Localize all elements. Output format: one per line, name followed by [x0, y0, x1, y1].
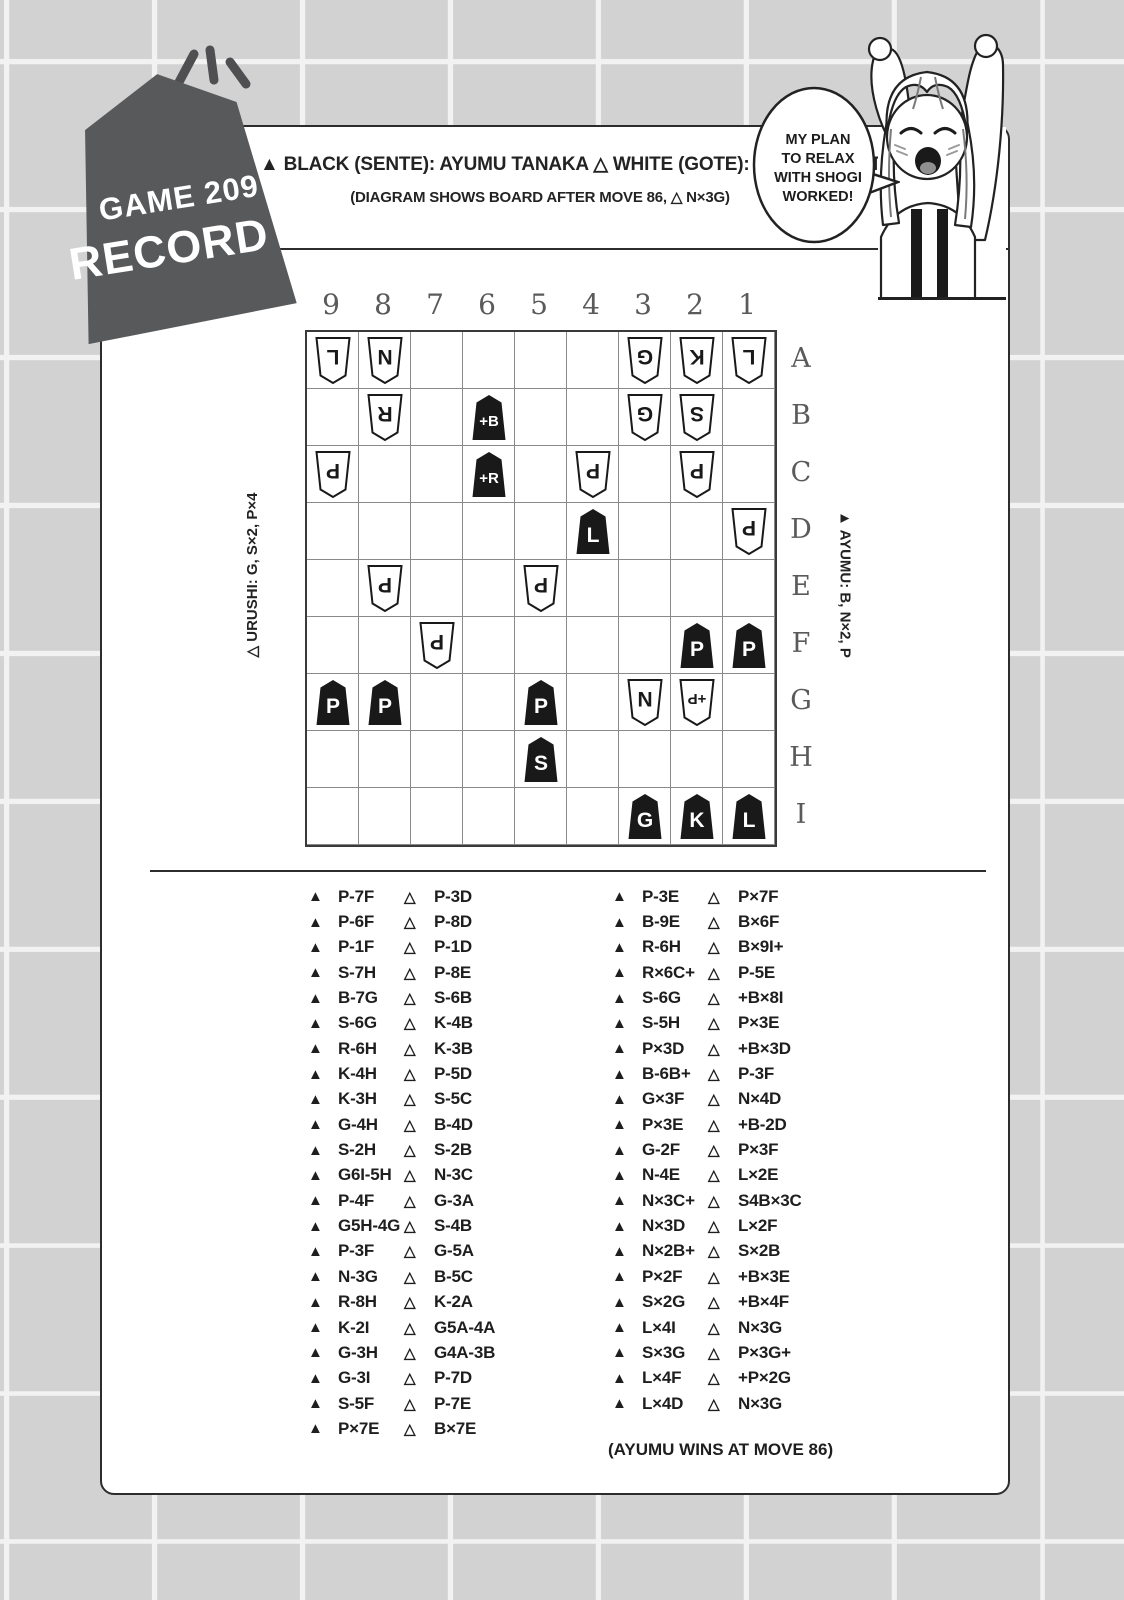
- move-row: ▲P×7E△B×7E: [308, 1416, 495, 1441]
- piece-label: L: [743, 809, 756, 832]
- piece-white-pawn: P: [727, 507, 771, 556]
- white-move-mark: △: [708, 1293, 738, 1311]
- black-move-mark: ▲: [612, 990, 642, 1007]
- black-move-mark: ▲: [612, 1294, 642, 1311]
- piece-label: P: [742, 516, 756, 539]
- black-hand-label: ▲ AYUMU: B, N×2, P: [837, 465, 854, 705]
- white-move: G-3A: [434, 1191, 474, 1211]
- tongue: [920, 162, 936, 174]
- move-row: ▲N-4E△L×2E: [612, 1163, 802, 1188]
- move-row: ▲P-4F△G-3A: [308, 1188, 495, 1213]
- white-move: +B-2D: [738, 1115, 787, 1135]
- move-row: ▲S×2G△+B×4F: [612, 1290, 802, 1315]
- black-move: S-5F: [338, 1394, 404, 1414]
- black-move-mark: ▲: [308, 1116, 338, 1133]
- piece-white-knight: N: [623, 678, 667, 727]
- piece-label: P: [690, 638, 704, 661]
- black-move: P×2F: [642, 1267, 708, 1287]
- white-move: P-3D: [434, 887, 472, 907]
- white-move-mark: △: [404, 1116, 434, 1134]
- white-move-mark: △: [708, 1014, 738, 1032]
- move-list-left: ▲P-7F△P-3D▲P-6F△P-8D▲P-1F△P-1D▲S-7H△P-8E…: [308, 884, 495, 1442]
- board-row-label: C: [786, 457, 816, 488]
- black-move-mark: ▲: [308, 1243, 338, 1260]
- white-move: B×9I+: [738, 937, 783, 957]
- white-move: K-2A: [434, 1292, 473, 1312]
- piece-white-pawn: P: [675, 450, 719, 499]
- move-row: ▲P×2F△+B×3E: [612, 1264, 802, 1289]
- black-move: P×7E: [338, 1419, 404, 1439]
- white-move-mark: △: [404, 1192, 434, 1210]
- white-move: P×7F: [738, 887, 778, 907]
- black-move-mark: ▲: [612, 1370, 642, 1387]
- move-row: ▲G-3H△G4A-3B: [308, 1340, 495, 1365]
- white-move: P×3G+: [738, 1343, 791, 1363]
- black-move-mark: ▲: [308, 1066, 338, 1083]
- piece-black-horse: +B: [467, 393, 511, 442]
- black-move-mark: ▲: [612, 1091, 642, 1108]
- move-row: ▲P×3D△+B×3D: [612, 1036, 802, 1061]
- white-move: P-8D: [434, 912, 472, 932]
- white-move-mark: △: [708, 1242, 738, 1260]
- black-move-mark: ▲: [308, 1268, 338, 1285]
- black-move: P-6F: [338, 912, 404, 932]
- piece-white-pawn: P: [363, 564, 407, 613]
- black-move: G-3H: [338, 1343, 404, 1363]
- white-move-mark: △: [708, 1116, 738, 1134]
- move-row: ▲R-8H△K-2A: [308, 1290, 495, 1315]
- white-move-mark: △: [708, 1141, 738, 1159]
- board-column-label: 8: [357, 288, 409, 321]
- board-column-label: 3: [617, 288, 669, 321]
- white-move-mark: △: [404, 1217, 434, 1235]
- white-move-mark: △: [708, 938, 738, 956]
- white-move-mark: △: [404, 1344, 434, 1362]
- black-move: B-9E: [642, 912, 708, 932]
- white-move: N×3G: [738, 1394, 782, 1414]
- black-move-mark: ▲: [612, 1167, 642, 1184]
- move-row: ▲L×4I△N×3G: [612, 1315, 802, 1340]
- black-move: R-6H: [338, 1039, 404, 1059]
- piece-label: P: [326, 459, 340, 482]
- move-row: ▲S-2H△S-2B: [308, 1137, 495, 1162]
- black-move: S-7H: [338, 963, 404, 983]
- black-move-mark: ▲: [308, 1167, 338, 1184]
- piece-label: P: [586, 459, 600, 482]
- bubble-line: WORKED!: [783, 188, 854, 207]
- diagram-note-line: (DIAGRAM SHOWS BOARD AFTER MOVE 86, △ N×…: [260, 188, 820, 206]
- move-row: ▲S-6G△+B×8I: [612, 985, 802, 1010]
- piece-white-gold: G: [623, 393, 667, 442]
- board-column-label: 7: [409, 288, 461, 321]
- black-move-mark: ▲: [308, 1218, 338, 1235]
- white-move: N-3C: [434, 1165, 473, 1185]
- white-move: S4B×3C: [738, 1191, 802, 1211]
- black-move-mark: ▲: [612, 1040, 642, 1057]
- piece-label: K: [689, 345, 704, 368]
- piece-black-pawn: P: [675, 621, 719, 670]
- piece-label: P: [430, 630, 444, 653]
- players-line: ▲ BLACK (SENTE): AYUMU TANAKA △ WHITE (G…: [260, 153, 820, 176]
- black-move-mark: ▲: [308, 1040, 338, 1057]
- black-move: P-3F: [338, 1241, 404, 1261]
- white-move: P-5E: [738, 963, 775, 983]
- move-list-right: ▲P-3E△P×7F▲B-9E△B×6F▲R-6H△B×9I+▲R×6C+△P-…: [612, 884, 802, 1416]
- board-row-label: H: [786, 742, 816, 773]
- black-move-mark: ▲: [612, 1116, 642, 1133]
- white-move-mark: △: [708, 1090, 738, 1108]
- black-move-mark: ▲: [612, 914, 642, 931]
- black-move: P-7F: [338, 887, 404, 907]
- white-move-mark: △: [708, 964, 738, 982]
- move-row: ▲L×4D△N×3G: [612, 1391, 802, 1416]
- right-fist: [975, 35, 997, 57]
- move-row: ▲R-6H△K-3B: [308, 1036, 495, 1061]
- black-move: K-2I: [338, 1318, 404, 1338]
- board-row-label: D: [786, 514, 816, 545]
- board-row-label: A: [786, 343, 816, 374]
- white-move: +B×3E: [738, 1267, 790, 1287]
- white-move: P-1D: [434, 937, 472, 957]
- board-column-label: 5: [513, 288, 565, 321]
- piece-black-pawn: P: [363, 678, 407, 727]
- piece-label: N: [637, 687, 652, 710]
- black-move-mark: ▲: [308, 914, 338, 931]
- piece-black-silver: S: [519, 735, 563, 784]
- black-move-mark: ▲: [308, 1420, 338, 1437]
- white-move: B×6F: [738, 912, 779, 932]
- strap-left: [911, 209, 922, 300]
- white-move-mark: △: [708, 888, 738, 906]
- black-move-mark: ▲: [612, 1192, 642, 1209]
- shogi-board: LNGKLR+BGSP+RPPLPPPPPPPPPN+PSGKL: [305, 330, 777, 847]
- white-move-mark: △: [708, 1192, 738, 1210]
- black-move: P-1F: [338, 937, 404, 957]
- move-row: ▲G×3F△N×4D: [612, 1087, 802, 1112]
- black-move-mark: ▲: [612, 1218, 642, 1235]
- white-move-mark: △: [404, 1242, 434, 1260]
- white-move-mark: △: [404, 1166, 434, 1184]
- move-row: ▲K-4H△P-5D: [308, 1061, 495, 1086]
- piece-label: P: [534, 573, 548, 596]
- white-move: +P×2G: [738, 1368, 791, 1388]
- white-move-mark: △: [404, 1065, 434, 1083]
- piece-white-tokin: +P: [675, 678, 719, 727]
- white-move-mark: △: [404, 1090, 434, 1108]
- white-move-mark: △: [708, 1344, 738, 1362]
- white-move-mark: △: [708, 1395, 738, 1413]
- black-move: G-3I: [338, 1368, 404, 1388]
- move-row: ▲N×2B+△S×2B: [612, 1239, 802, 1264]
- move-row: ▲S-5F△P-7E: [308, 1391, 495, 1416]
- piece-label: P: [378, 573, 392, 596]
- piece-white-pawn: P: [571, 450, 615, 499]
- piece-label: +R: [479, 470, 499, 487]
- black-move-mark: ▲: [612, 888, 642, 905]
- piece-black-pawn: P: [311, 678, 355, 727]
- move-row: ▲S-7H△P-8E: [308, 960, 495, 985]
- white-move: P-8E: [434, 963, 471, 983]
- piece-label: G: [637, 809, 653, 832]
- white-move: K-3B: [434, 1039, 473, 1059]
- black-move: G-2F: [642, 1140, 708, 1160]
- piece-label: +P: [688, 690, 707, 707]
- white-move-mark: △: [404, 1420, 434, 1438]
- white-move: P-7E: [434, 1394, 471, 1414]
- black-move-mark: ▲: [308, 990, 338, 1007]
- white-move: N×4D: [738, 1089, 781, 1109]
- move-row: ▲P-3E△P×7F: [612, 884, 802, 909]
- bubble-line: MY PLAN: [786, 131, 851, 150]
- result-note: (AYUMU WINS AT MOVE 86): [608, 1440, 833, 1460]
- white-move-mark: △: [404, 1293, 434, 1311]
- white-move: +B×4F: [738, 1292, 789, 1312]
- black-move: G×3F: [642, 1089, 708, 1109]
- white-move-mark: △: [404, 1141, 434, 1159]
- piece-label: G: [637, 345, 653, 368]
- move-row: ▲K-3H△S-5C: [308, 1087, 495, 1112]
- move-row: ▲G6I-5H△N-3C: [308, 1163, 495, 1188]
- move-row: ▲R-6H△B×9I+: [612, 935, 802, 960]
- board-row-label: F: [786, 628, 816, 659]
- board-row-label: E: [786, 571, 816, 602]
- move-row: ▲G5H-4G△S-4B: [308, 1213, 495, 1238]
- black-move: B-6B+: [642, 1064, 708, 1084]
- piece-black-lance: L: [727, 792, 771, 841]
- white-move-mark: △: [708, 1065, 738, 1083]
- move-row: ▲B-6B+△P-3F: [612, 1061, 802, 1086]
- white-move-mark: △: [708, 989, 738, 1007]
- piece-label: P: [534, 695, 548, 718]
- white-move: P-3F: [738, 1064, 774, 1084]
- piece-label: K: [689, 809, 704, 832]
- board-row-label: I: [786, 799, 816, 830]
- board-row-label: B: [786, 400, 816, 431]
- black-move-mark: ▲: [308, 1192, 338, 1209]
- black-move-mark: ▲: [308, 964, 338, 981]
- move-row: ▲G-4H△B-4D: [308, 1112, 495, 1137]
- black-move: S-5H: [642, 1013, 708, 1033]
- black-move-mark: ▲: [612, 1344, 642, 1361]
- black-move: B-7G: [338, 988, 404, 1008]
- white-move: +B×8I: [738, 988, 783, 1008]
- black-move-mark: ▲: [612, 964, 642, 981]
- black-move-mark: ▲: [308, 1370, 338, 1387]
- white-move-mark: △: [404, 964, 434, 982]
- board-row-label: G: [786, 685, 816, 716]
- piece-black-pawn: P: [727, 621, 771, 670]
- piece-white-lance: L: [727, 336, 771, 385]
- piece-white-rook: R: [363, 393, 407, 442]
- white-move-mark: △: [404, 938, 434, 956]
- black-move: P×3E: [642, 1115, 708, 1135]
- move-row: ▲G-2F△P×3F: [612, 1137, 802, 1162]
- piece-white-gold: G: [623, 336, 667, 385]
- move-row: ▲B-9E△B×6F: [612, 909, 802, 934]
- white-move-mark: △: [404, 1395, 434, 1413]
- speech-bubble-text: MY PLAN TO RELAX WITH SHOGI WORKED!: [754, 88, 882, 250]
- white-move-mark: △: [404, 913, 434, 931]
- move-row: ▲P-7F△P-3D: [308, 884, 495, 909]
- black-move: G-4H: [338, 1115, 404, 1135]
- white-move: N×3G: [738, 1318, 782, 1338]
- piece-label: N: [377, 345, 392, 368]
- white-move: P×3F: [738, 1140, 778, 1160]
- board-column-label: 1: [721, 288, 773, 321]
- board-column-label: 6: [461, 288, 513, 321]
- black-move: N×3D: [642, 1216, 708, 1236]
- white-move-mark: △: [708, 1166, 738, 1184]
- white-move-mark: △: [404, 1369, 434, 1387]
- manga-game-record-page: ▲ BLACK (SENTE): AYUMU TANAKA △ WHITE (G…: [0, 0, 1124, 1600]
- white-move: K-4B: [434, 1013, 473, 1033]
- strap-right: [937, 209, 948, 300]
- move-row: ▲P-1F△P-1D: [308, 935, 495, 960]
- white-move-mark: △: [708, 1268, 738, 1286]
- illustration-bottom-border: [878, 297, 1006, 300]
- black-move: S-2H: [338, 1140, 404, 1160]
- black-move: R-8H: [338, 1292, 404, 1312]
- move-row: ▲K-2I△G5A-4A: [308, 1315, 495, 1340]
- white-move-mark: △: [708, 1369, 738, 1387]
- move-row: ▲N×3C+△S4B×3C: [612, 1188, 802, 1213]
- white-move-mark: △: [708, 1217, 738, 1235]
- white-move: P×3E: [738, 1013, 779, 1033]
- piece-label: S: [534, 752, 548, 775]
- move-row: ▲B-7G△S-6B: [308, 985, 495, 1010]
- move-row: ▲S-6G△K-4B: [308, 1011, 495, 1036]
- piece-black-pawn: P: [519, 678, 563, 727]
- black-move: S×2G: [642, 1292, 708, 1312]
- white-move-mark: △: [404, 888, 434, 906]
- piece-black-lance: L: [571, 507, 615, 556]
- white-move: S-6B: [434, 988, 472, 1008]
- move-row: ▲S-5H△P×3E: [612, 1011, 802, 1036]
- black-move-mark: ▲: [612, 939, 642, 956]
- black-move: N×3C+: [642, 1191, 708, 1211]
- move-row: ▲N-3G△B-5C: [308, 1264, 495, 1289]
- moves-divider: [150, 870, 986, 872]
- white-move: B×7E: [434, 1419, 476, 1439]
- black-move: S-6G: [338, 1013, 404, 1033]
- black-move-mark: ▲: [308, 1142, 338, 1159]
- black-move: K-4H: [338, 1064, 404, 1084]
- white-move: S-2B: [434, 1140, 472, 1160]
- black-move: R-6H: [642, 937, 708, 957]
- black-move: S-6G: [642, 988, 708, 1008]
- black-move: L×4F: [642, 1368, 708, 1388]
- white-move: P-7D: [434, 1368, 472, 1388]
- piece-white-king: K: [675, 336, 719, 385]
- white-move: L×2E: [738, 1165, 778, 1185]
- white-move-mark: △: [404, 1040, 434, 1058]
- black-move: S×3G: [642, 1343, 708, 1363]
- move-row: ▲S×3G△P×3G+: [612, 1340, 802, 1365]
- black-move: K-3H: [338, 1089, 404, 1109]
- black-move: P-4F: [338, 1191, 404, 1211]
- black-move-mark: ▲: [612, 1243, 642, 1260]
- white-move: +B×3D: [738, 1039, 791, 1059]
- bubble-line: WITH SHOGI: [774, 169, 862, 188]
- game-record-badge: GAME 209 RECORD 2: [42, 38, 332, 358]
- piece-label: G: [637, 402, 653, 425]
- piece-label: P: [690, 459, 704, 482]
- black-move: G6I-5H: [338, 1165, 404, 1185]
- white-move: P-5D: [434, 1064, 472, 1084]
- black-move-mark: ▲: [612, 1066, 642, 1083]
- piece-white-silver: S: [675, 393, 719, 442]
- white-move: L×2F: [738, 1216, 777, 1236]
- black-move-mark: ▲: [308, 1319, 338, 1336]
- white-move: B-4D: [434, 1115, 473, 1135]
- black-move-mark: ▲: [308, 888, 338, 905]
- piece-label: L: [587, 524, 600, 547]
- piece-label: P: [742, 638, 756, 661]
- piece-white-knight: N: [363, 336, 407, 385]
- white-move: B-5C: [434, 1267, 473, 1287]
- piece-label: R: [377, 402, 392, 425]
- black-move-mark: ▲: [612, 1319, 642, 1336]
- white-move: G5A-4A: [434, 1318, 495, 1338]
- black-move-mark: ▲: [612, 1015, 642, 1032]
- piece-black-gold: G: [623, 792, 667, 841]
- black-move-mark: ▲: [308, 1395, 338, 1412]
- white-move-mark: △: [708, 1040, 738, 1058]
- move-row: ▲P×3E△+B-2D: [612, 1112, 802, 1137]
- move-row: ▲P-3F△G-5A: [308, 1239, 495, 1264]
- white-hand-label: △ URUSHI: G, S×2, P×4: [243, 455, 261, 695]
- black-move-mark: ▲: [308, 1294, 338, 1311]
- white-move-mark: △: [404, 1014, 434, 1032]
- piece-label: P: [326, 695, 340, 718]
- black-move: P-3E: [642, 887, 708, 907]
- black-move-mark: ▲: [612, 1142, 642, 1159]
- move-row: ▲P-6F△P-8D: [308, 909, 495, 934]
- black-move-mark: ▲: [308, 1344, 338, 1361]
- white-move: G4A-3B: [434, 1343, 495, 1363]
- left-fist: [869, 38, 891, 60]
- move-row: ▲G-3I△P-7D: [308, 1366, 495, 1391]
- black-move-mark: ▲: [612, 1268, 642, 1285]
- board-column-label: 4: [565, 288, 617, 321]
- white-move-mark: △: [708, 1319, 738, 1337]
- piece-white-pawn: P: [311, 450, 355, 499]
- white-move: G-5A: [434, 1241, 474, 1261]
- white-move: S-4B: [434, 1216, 472, 1236]
- white-move: S-5C: [434, 1089, 472, 1109]
- move-row: ▲R×6C+△P-5E: [612, 960, 802, 985]
- piece-black-king: K: [675, 792, 719, 841]
- piece-black-dragon: +R: [467, 450, 511, 499]
- black-move: N-3G: [338, 1267, 404, 1287]
- black-move-mark: ▲: [308, 1091, 338, 1108]
- move-row: ▲N×3D△L×2F: [612, 1213, 802, 1238]
- piece-label: L: [742, 345, 755, 368]
- black-move: L×4I: [642, 1318, 708, 1338]
- white-move-mark: △: [708, 913, 738, 931]
- piece-white-pawn: P: [415, 621, 459, 670]
- black-move: G5H-4G: [338, 1216, 404, 1236]
- piece-white-pawn: P: [519, 564, 563, 613]
- piece-label: S: [690, 402, 704, 425]
- black-move: R×6C+: [642, 963, 708, 983]
- white-move-mark: △: [404, 1319, 434, 1337]
- board-column-label: 2: [669, 288, 721, 321]
- black-move: N-4E: [642, 1165, 708, 1185]
- white-move: S×2B: [738, 1241, 780, 1261]
- black-move: P×3D: [642, 1039, 708, 1059]
- emphasis-dashes: [178, 50, 246, 84]
